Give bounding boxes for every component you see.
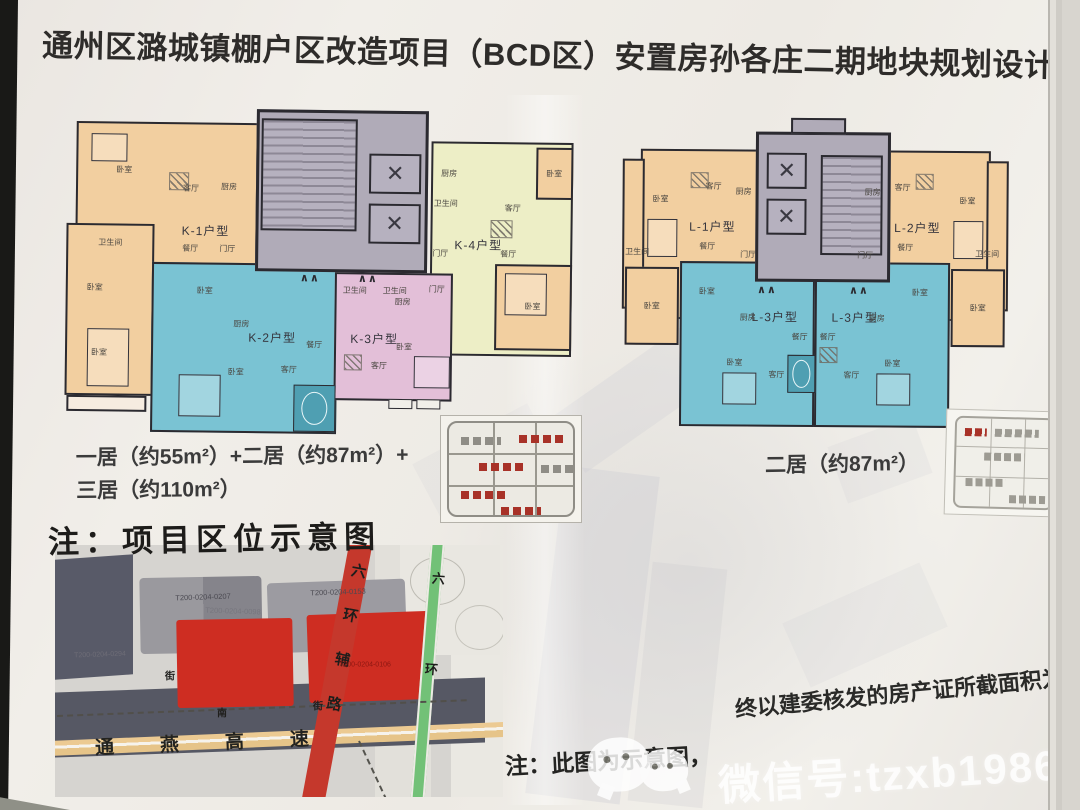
unit-label-k3: K-3户型: [350, 330, 398, 348]
room-label: 卧室: [699, 286, 715, 297]
street-label-fragment: 街: [313, 698, 323, 713]
room-label: 客厅: [706, 181, 722, 192]
parcel-dark-west: [55, 554, 133, 679]
building-cluster-gray: [541, 465, 573, 473]
room-label: 卫生间: [343, 285, 367, 296]
summary-line-2: 三居（约110m²）: [76, 472, 409, 508]
hatch-icon: [490, 220, 512, 238]
left-plan-summary: 一居（约55m²）+二居（约87m²）+ 三居（约110m²）: [76, 439, 409, 508]
right-plan-summary: 二居（约87m²）: [765, 447, 919, 479]
sofa-rug-icon: [787, 355, 815, 393]
street-label-fragment: 街: [165, 668, 175, 683]
room-label: 厨房: [441, 168, 457, 179]
room-label: 客厅: [843, 370, 859, 381]
room-label: 卫生间: [975, 249, 999, 260]
room-label: 门厅: [429, 284, 445, 295]
elevator-cross-glyph: ✕: [777, 204, 796, 230]
poster-photo: { "title": "通州区潞城镇棚户区改造项目（BCD区）安置房孙各庄二期地…: [0, 0, 1080, 810]
elevator-cross-glyph: ✕: [386, 161, 405, 187]
room-label: 客厅: [371, 360, 387, 371]
bed-icon: [414, 356, 450, 388]
room-label: 客厅: [183, 183, 199, 194]
room-label: 餐厅: [792, 331, 808, 342]
map-heading: 注：项目区位示意图: [48, 511, 382, 562]
room-label: 卧室: [396, 341, 412, 352]
room-label: 卧室: [884, 358, 900, 369]
site-outline: [953, 416, 1055, 511]
room-label: 餐厅: [306, 339, 322, 350]
room-label: 厨房: [233, 318, 249, 329]
room-label: 厨房: [736, 186, 752, 197]
hatch-icon: [344, 354, 362, 370]
double-door-icon: ∧∧: [300, 271, 320, 284]
room-label: 卫生间: [434, 198, 458, 209]
room-label: 门厅: [857, 250, 873, 261]
double-door-icon: ∧∧: [757, 283, 777, 296]
room-label: 厨房: [869, 313, 885, 324]
room-label: 卧室: [970, 303, 986, 314]
double-door-icon: ∧∧: [358, 272, 378, 285]
unit-label-l1: L-1户型: [689, 218, 735, 235]
room-label: 厨房: [395, 296, 411, 307]
room-label: 餐厅: [897, 242, 913, 253]
elevator-cross-glyph: ✕: [385, 211, 404, 237]
bed-icon: [91, 133, 127, 161]
room-label: 卧室: [960, 196, 976, 207]
elevator-shaft-icon: ✕: [767, 153, 807, 189]
room-label: 餐厅: [500, 249, 516, 260]
room-label: 卧室: [116, 164, 132, 175]
room-label: 卧室: [228, 366, 244, 377]
balcony: [66, 395, 146, 412]
building-cluster-gray: [1009, 495, 1045, 504]
building-cluster-gray: [965, 478, 1005, 487]
room-label: 卧室: [726, 357, 742, 368]
building-cluster-red: [479, 463, 525, 471]
room-label: 门厅: [432, 248, 448, 259]
elevator-cross-glyph: ✕: [777, 158, 796, 184]
room-label: 卫生间: [383, 285, 407, 296]
building-cluster-gray: [995, 429, 1039, 438]
wechat-bubble-tail: [675, 778, 691, 794]
staircase: [820, 155, 883, 255]
street-label-fragment: 南: [217, 705, 227, 720]
room-label: 餐厅: [820, 332, 836, 343]
location-map: 通燕高速 六环辅路 六环 T200-0204-0207 T200-0204-00…: [55, 545, 503, 797]
parcel-red-1: [176, 618, 294, 708]
unit-label-k1: K-1户型: [182, 222, 230, 240]
ac-unit: [388, 399, 412, 409]
parcel-label: T200-0204-0153: [310, 587, 366, 598]
room-label: 客厅: [895, 182, 911, 193]
double-door-icon: ∧∧: [849, 284, 869, 297]
hatch-icon: [819, 347, 837, 363]
floor-plan-right: ✕ ✕ ∧∧ ∧∧ L-1户型 L-2户型 L-3户型 L-3户型 卧室 客厅 …: [614, 124, 1016, 437]
room-label: 客厅: [281, 364, 297, 375]
elevator-shaft-icon: ✕: [369, 154, 421, 195]
room-label: 卧室: [653, 193, 669, 204]
unit-label-l2: L-2户型: [894, 219, 940, 236]
elevator-shaft-icon: ✕: [368, 204, 420, 245]
room-label: 卧室: [87, 282, 103, 293]
stair-elevator-core: ✕ ✕: [255, 109, 429, 273]
page-title: 通州区潞城镇棚户区改造项目（BCD区）安置房孙各庄二期地块规划设计方案: [42, 20, 1053, 85]
room-label: 餐厅: [182, 243, 198, 254]
unit-label-k2: K-2户型: [248, 329, 296, 347]
room-label: 卫生间: [625, 246, 649, 257]
parcel-label: T200-0204-0098: [205, 606, 261, 617]
room-label: 卧室: [546, 168, 562, 179]
room-label: 客厅: [505, 203, 521, 214]
site-thumbnail-left: [440, 415, 582, 523]
staircase: [260, 118, 357, 231]
site-thumbnail-right: [944, 408, 1065, 517]
bed-icon: [722, 372, 756, 404]
room-label: 卧室: [525, 301, 541, 312]
photo-edge-left: [0, 0, 18, 810]
building-cluster-gray: [461, 437, 501, 445]
building-cluster-gray: [984, 452, 1024, 461]
elevator-shaft-icon: ✕: [766, 199, 806, 235]
sofa-rug-icon: [293, 385, 336, 433]
room-label: 卫生间: [98, 237, 122, 248]
ac-unit: [416, 399, 440, 409]
parcel-label: T200-0204-0207: [175, 592, 231, 603]
room-label: 客厅: [768, 369, 784, 380]
bed-icon: [647, 219, 677, 257]
summary-line-1: 一居（约55m²）+二居（约87m²）+: [76, 439, 409, 475]
room-label: 门厅: [740, 249, 756, 260]
room-label: 卧室: [644, 300, 660, 311]
room-label: 卧室: [912, 287, 928, 298]
room-label: 餐厅: [699, 241, 715, 252]
building-cluster-red: [461, 491, 505, 499]
site-outline: [447, 421, 575, 517]
unit-label-k4: K-4户型: [454, 236, 502, 254]
bed-icon: [876, 373, 910, 405]
room-label: 厨房: [740, 312, 756, 323]
room-label: 卧室: [91, 347, 107, 358]
building-cluster-red: [965, 428, 987, 437]
photo-edge-right: [1048, 0, 1080, 810]
building-cluster-red: [501, 507, 541, 515]
floor-plan-left: ✕ ✕ ∧∧ ∧∧ K-1户型 K-2户型 K-3户型 K-4户型 卧室 客厅 …: [58, 103, 587, 439]
room-label: 厨房: [221, 181, 237, 192]
unit-label-l3a: L-3户型: [752, 308, 798, 325]
room-label: 厨房: [865, 187, 881, 198]
building-cluster-red: [519, 435, 563, 443]
ramp-curve: [455, 605, 503, 650]
room-label: 卧室: [197, 285, 213, 296]
hatch-icon: [916, 174, 934, 190]
parcel-label: T200-0204-0106: [339, 662, 391, 669]
wechat-icon: [586, 727, 710, 810]
room-label: 门厅: [219, 243, 235, 254]
bed-icon: [178, 374, 221, 417]
core-top-bump: [791, 118, 846, 134]
